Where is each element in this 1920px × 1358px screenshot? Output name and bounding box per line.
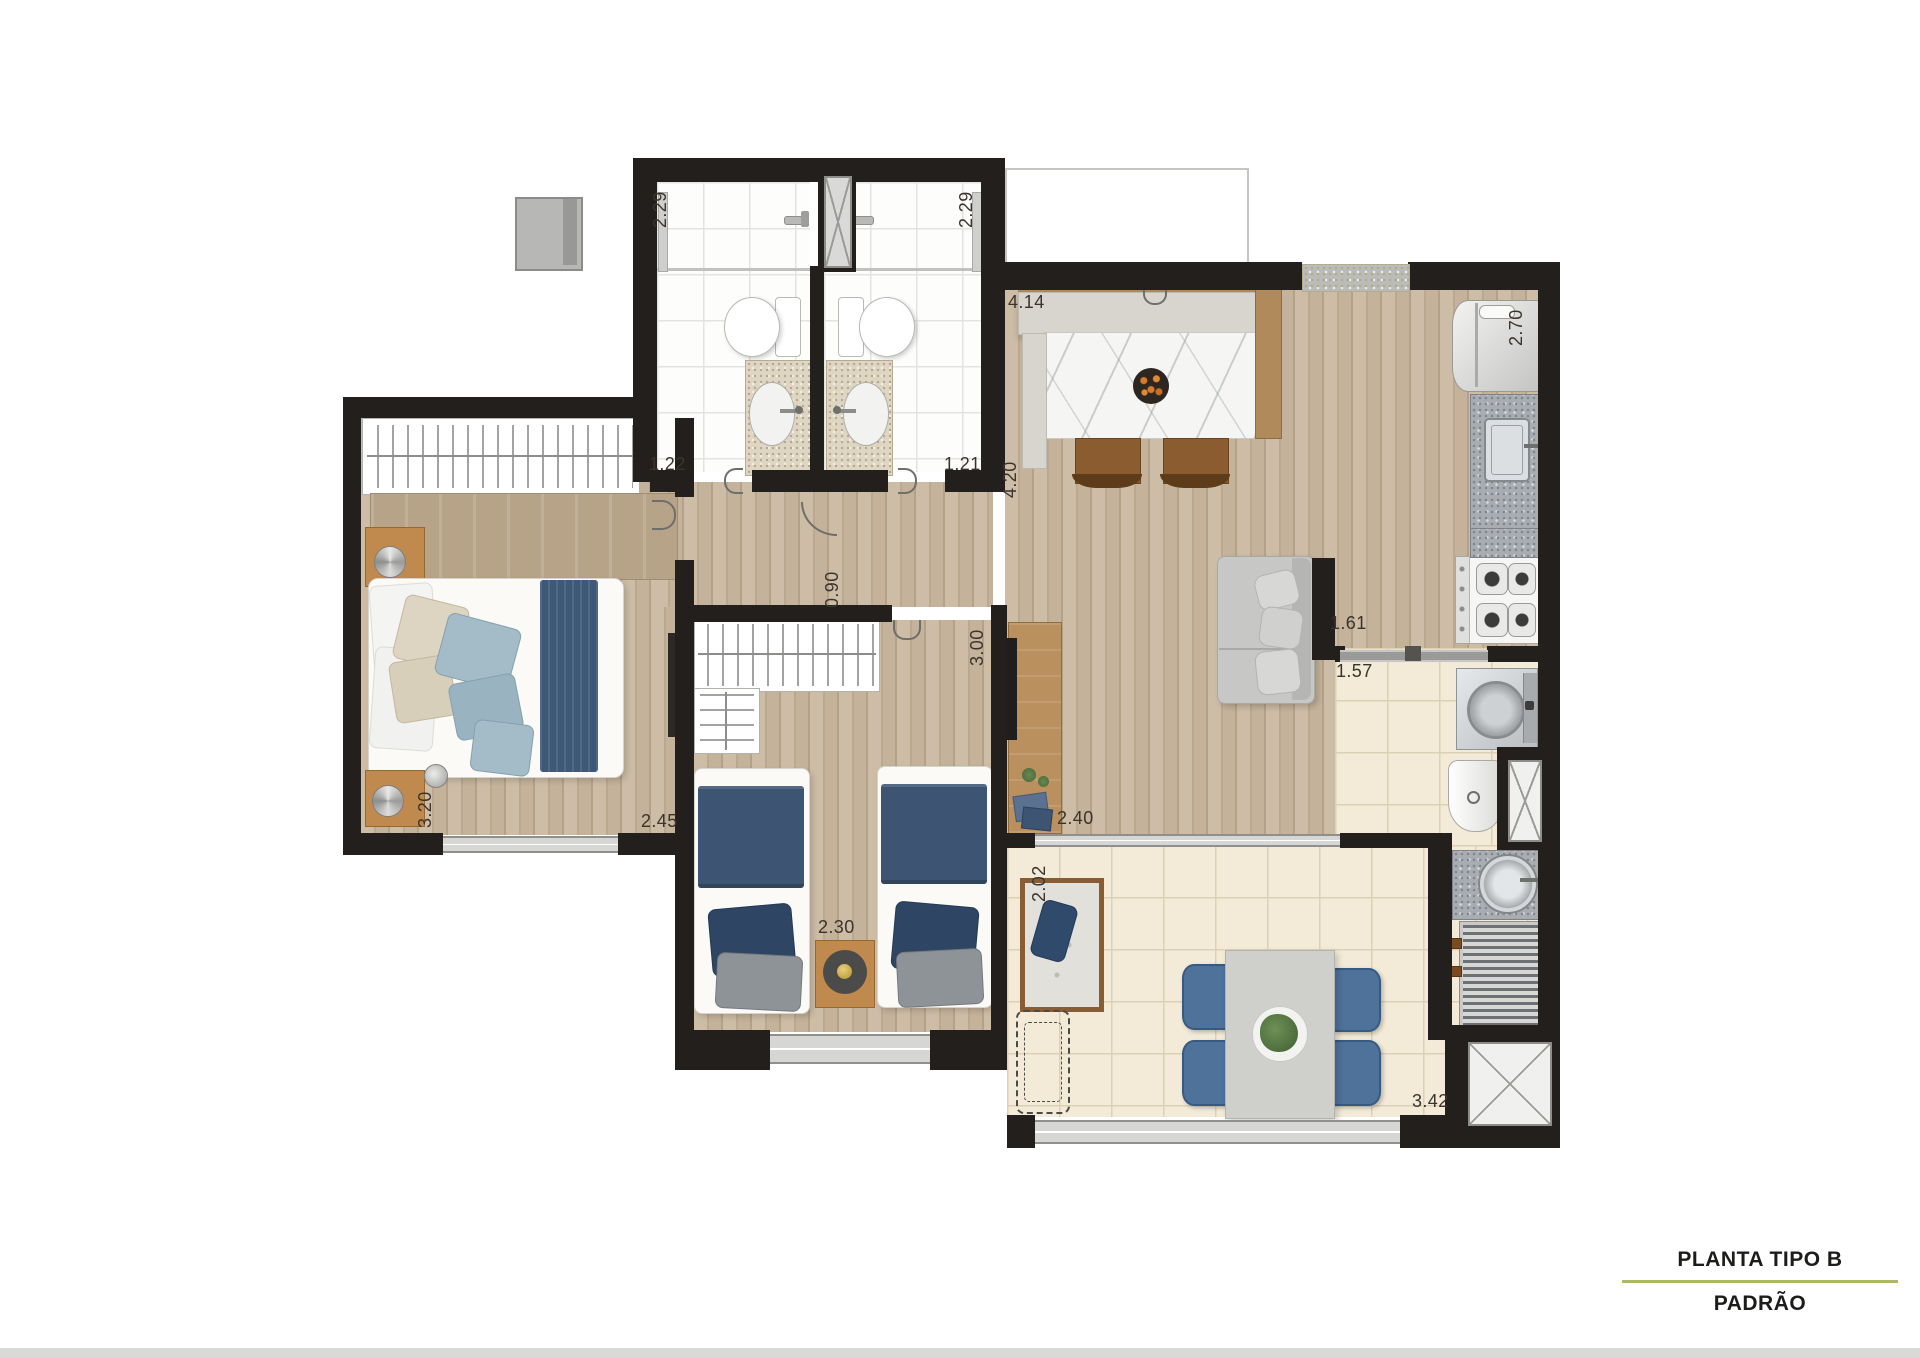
washing-machine-door bbox=[1467, 681, 1525, 739]
bedroom2-lamp bbox=[837, 964, 852, 979]
dim-bath2-width: 1.21 bbox=[944, 454, 981, 475]
stove-burner-4 bbox=[1508, 603, 1536, 637]
stove-burner-3 bbox=[1476, 603, 1508, 637]
dim-master-width: 2.45 bbox=[641, 811, 678, 832]
shower1-head-base bbox=[801, 211, 809, 227]
dim-bath1-width: 1.22 bbox=[649, 454, 686, 475]
vanity1-tap-dot bbox=[795, 406, 803, 414]
kitchen-top-wall-left bbox=[991, 262, 1302, 290]
terrace-bottom-wall-left bbox=[1007, 1115, 1035, 1148]
bath-bottom-wall-mid bbox=[752, 470, 888, 492]
living-terrace-wall-left bbox=[1007, 833, 1035, 848]
future-furniture-dashed-box bbox=[1016, 1010, 1070, 1114]
bed2-top-wall bbox=[694, 605, 892, 622]
island-upper-counter bbox=[1018, 292, 1257, 335]
living-terrace-glass-doors bbox=[1035, 834, 1340, 847]
bedroom2-closet-hangers-leg bbox=[700, 693, 754, 749]
master-window bbox=[443, 836, 618, 853]
master-bed-runner bbox=[540, 580, 598, 772]
kitchen-top-wall-right bbox=[1408, 262, 1538, 290]
common-corridor bbox=[1005, 168, 1249, 272]
bed2-bottom-wall-left bbox=[675, 1030, 770, 1070]
terrace-window bbox=[1035, 1120, 1400, 1144]
dining-chair-3 bbox=[1330, 968, 1381, 1032]
refrigerator-door-line bbox=[1475, 303, 1478, 387]
vanity2-sink bbox=[843, 382, 889, 446]
service-sliding-door-handle bbox=[1405, 646, 1421, 661]
stove bbox=[1455, 556, 1539, 644]
bed2-right-wall bbox=[991, 605, 1007, 1070]
twin-bed-1-pillow-gray bbox=[715, 952, 804, 1012]
twin-bed-2-blanket bbox=[881, 784, 987, 884]
bedroom2-window bbox=[770, 1034, 930, 1064]
bath-center-wall bbox=[810, 266, 824, 492]
laundry-tank-bowl bbox=[1478, 854, 1538, 914]
washing-machine-knob bbox=[1525, 701, 1534, 710]
dim-fridge-side: 2.70 bbox=[1506, 298, 1527, 346]
dim-bedroom2-depth: 3.00 bbox=[967, 618, 988, 666]
bedroom2-closet-rail-top bbox=[698, 653, 876, 655]
master-bed2-divider-lower bbox=[675, 560, 694, 833]
toilet1-bowl bbox=[724, 297, 780, 357]
island-side-panel bbox=[1022, 333, 1047, 469]
nightstand-decor-disc-2 bbox=[372, 785, 404, 817]
twin-bed-1-blanket bbox=[698, 786, 804, 888]
bedroom2-closet-hangers-top bbox=[699, 624, 875, 686]
kitchen-window-sill bbox=[1302, 264, 1410, 292]
sofa-pillow-3 bbox=[1254, 648, 1302, 696]
dim-terrace-width: 3.42 bbox=[1412, 1091, 1449, 1112]
floor-plan-canvas: 2.29 2.29 1.22 1.21 4.14 2.70 4.20 0.90 … bbox=[0, 0, 1920, 1358]
stove-burner-1 bbox=[1476, 563, 1508, 595]
bed2-bottom-wall-right bbox=[930, 1030, 1007, 1070]
washing-machine bbox=[1456, 668, 1538, 750]
dim-living-width: 2.40 bbox=[1057, 808, 1094, 829]
stove-control-strip bbox=[1456, 557, 1470, 643]
bedroom2-closet-rail-leg bbox=[725, 692, 727, 750]
dining-chair-4 bbox=[1330, 1040, 1381, 1106]
dim-service-opening-top: 1.61 bbox=[1330, 613, 1367, 634]
tv-screen bbox=[1006, 638, 1017, 740]
living-kitchen-stub-wall bbox=[1312, 558, 1335, 660]
dim-master-depth: 3.20 bbox=[415, 782, 436, 828]
shower1-glass-line bbox=[657, 268, 810, 271]
dim-hall-width: 0.90 bbox=[822, 562, 843, 608]
bath-right-wall bbox=[981, 158, 1005, 492]
master-top-wall bbox=[343, 397, 655, 418]
nightstand-decor-disc bbox=[374, 546, 406, 578]
service-duct-xbox bbox=[1508, 760, 1542, 842]
table-plant bbox=[1260, 1014, 1298, 1052]
bath1-door-swing bbox=[724, 468, 743, 494]
dim-bedroom2-width: 2.30 bbox=[818, 917, 855, 938]
dim-kitchen-depth: 4.20 bbox=[1000, 450, 1021, 498]
bottom-edge-strip bbox=[0, 1348, 1920, 1358]
plan-title: PLANTA TIPO B bbox=[1622, 1248, 1898, 1272]
kitchen-sink-inner bbox=[1491, 425, 1523, 475]
bedroom2-door-swing bbox=[893, 620, 921, 640]
water-heater-logo bbox=[1467, 791, 1480, 804]
dim-kitchen-width: 4.14 bbox=[1008, 292, 1045, 313]
plan-subtitle: PADRÃO bbox=[1622, 1292, 1898, 1316]
bedroom2-closet-leg bbox=[694, 688, 760, 754]
island-wood-side bbox=[1255, 286, 1282, 439]
bathroom-duct-xbox bbox=[824, 176, 852, 268]
bedroom2-closet-top bbox=[694, 618, 880, 692]
dim-service-opening-bottom: 1.57 bbox=[1336, 661, 1373, 682]
title-divider-line bbox=[1622, 1280, 1898, 1283]
vanity2-tap-dot bbox=[833, 406, 841, 414]
counter-above-stove bbox=[1470, 528, 1542, 558]
title-block: PLANTA TIPO B PADRÃO bbox=[1622, 1248, 1898, 1316]
external-duct-edge bbox=[563, 199, 577, 265]
master-pillow-blue-3 bbox=[469, 719, 535, 778]
right-outer-wall bbox=[1538, 262, 1560, 1148]
kitchen-sink bbox=[1484, 418, 1530, 482]
terrace-bottom-wall-right bbox=[1400, 1115, 1445, 1148]
sideboard-plant-2 bbox=[1038, 776, 1049, 787]
future-furniture-dashed-inner bbox=[1024, 1022, 1062, 1102]
dim-terrace-depth: 2.02 bbox=[1029, 854, 1050, 902]
twin-bed-2-pillow-gray bbox=[896, 948, 985, 1008]
drying-rack bbox=[1460, 922, 1548, 1036]
toilet2-bowl bbox=[859, 297, 915, 357]
service-divider-wall bbox=[1428, 845, 1452, 1040]
sideboard-books-2 bbox=[1021, 806, 1053, 831]
dim-bath2-depth: 2.29 bbox=[956, 182, 977, 228]
sideboard-plant-1 bbox=[1022, 768, 1036, 782]
fruit-bowl bbox=[1133, 368, 1169, 404]
master-wardrobe bbox=[362, 418, 640, 495]
water-heater bbox=[1448, 760, 1504, 832]
master-left-wall bbox=[343, 397, 361, 855]
stove-burner-2 bbox=[1508, 563, 1536, 595]
master-wardrobe-rail bbox=[367, 455, 635, 457]
corner-shaft-xbox bbox=[1468, 1042, 1552, 1126]
vanity1-sink bbox=[749, 382, 795, 446]
sofa-pillow-2 bbox=[1257, 605, 1304, 650]
dim-bath1-depth: 2.29 bbox=[650, 182, 671, 228]
service-door-jamb-right bbox=[1487, 646, 1545, 662]
master-bottom-wall-left bbox=[343, 833, 443, 855]
